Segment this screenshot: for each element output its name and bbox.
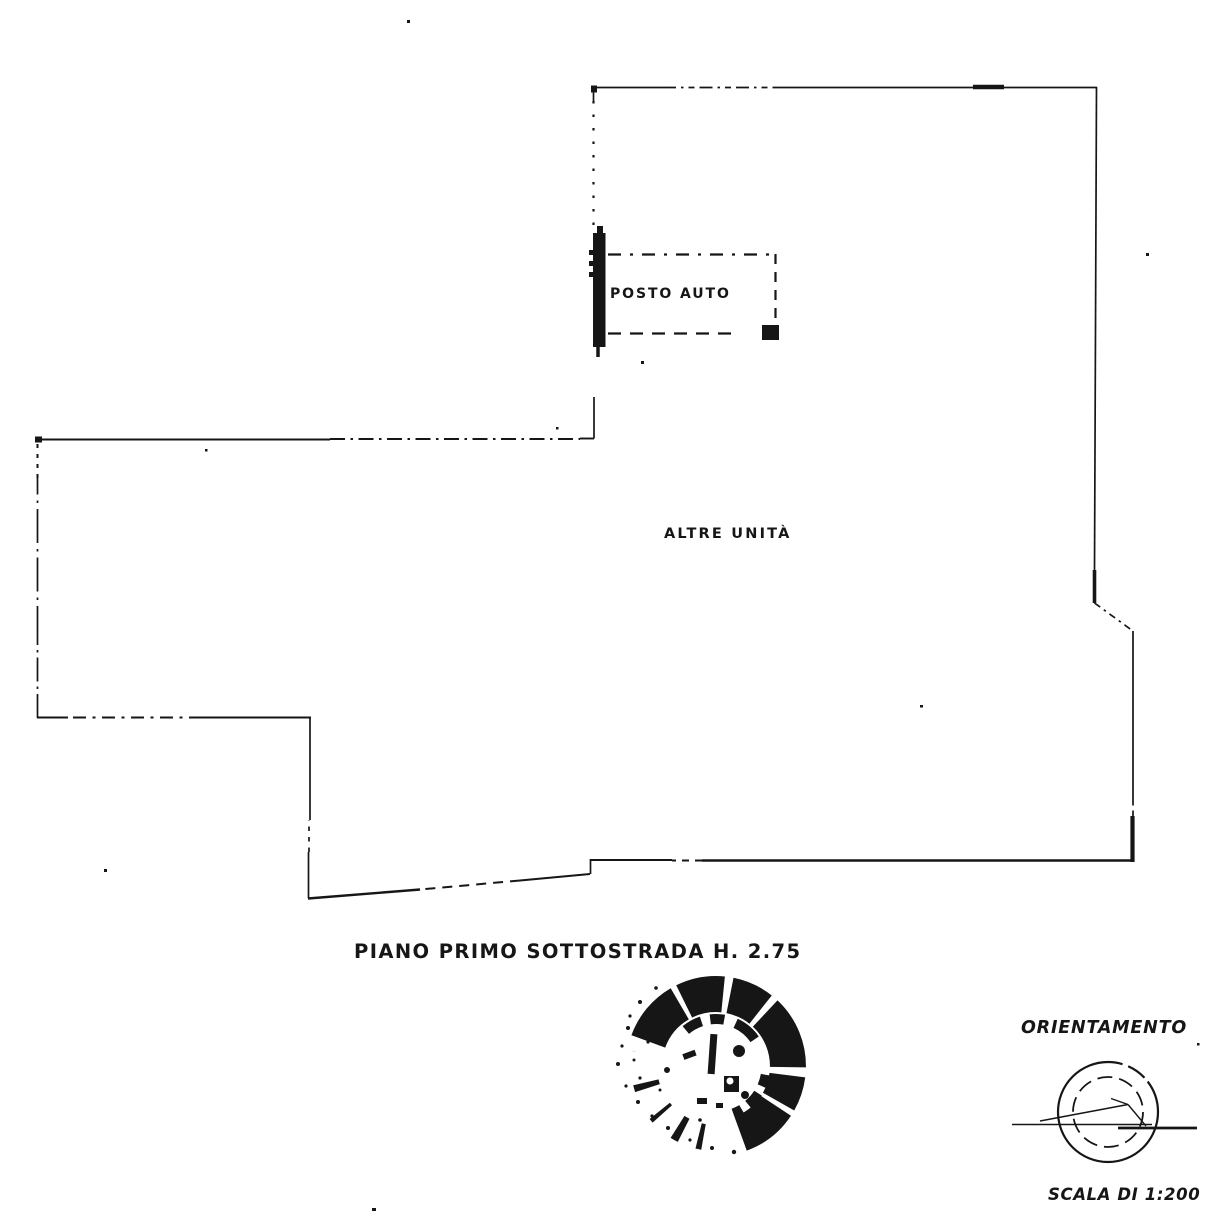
parking-corner-marker: [762, 325, 779, 340]
compass-needle: [1040, 1099, 1146, 1127]
altre-unita-label: ALTRE UNITÀ: [664, 527, 792, 542]
parking-wall-bar: [593, 233, 606, 347]
orientation-compass: [1012, 1062, 1197, 1162]
orientation-title: ORIENTAMENTO: [1021, 1020, 1187, 1038]
floor-plan-sheet: POSTO AUTO ALTRE UNITÀ PIANO PRIMO SOTTO…: [0, 0, 1212, 1216]
floor-plan-outline: [35, 86, 1133, 899]
compass-inner-circle: [1073, 1077, 1143, 1147]
plan-caption: PIANO PRIMO SOTTOSTRADA H. 2.75: [354, 942, 801, 962]
posto-auto-label: POSTO AUTO: [610, 287, 731, 301]
ink-stamp: [616, 986, 788, 1154]
scale-label: SCALA DI 1:200: [1048, 1187, 1200, 1204]
